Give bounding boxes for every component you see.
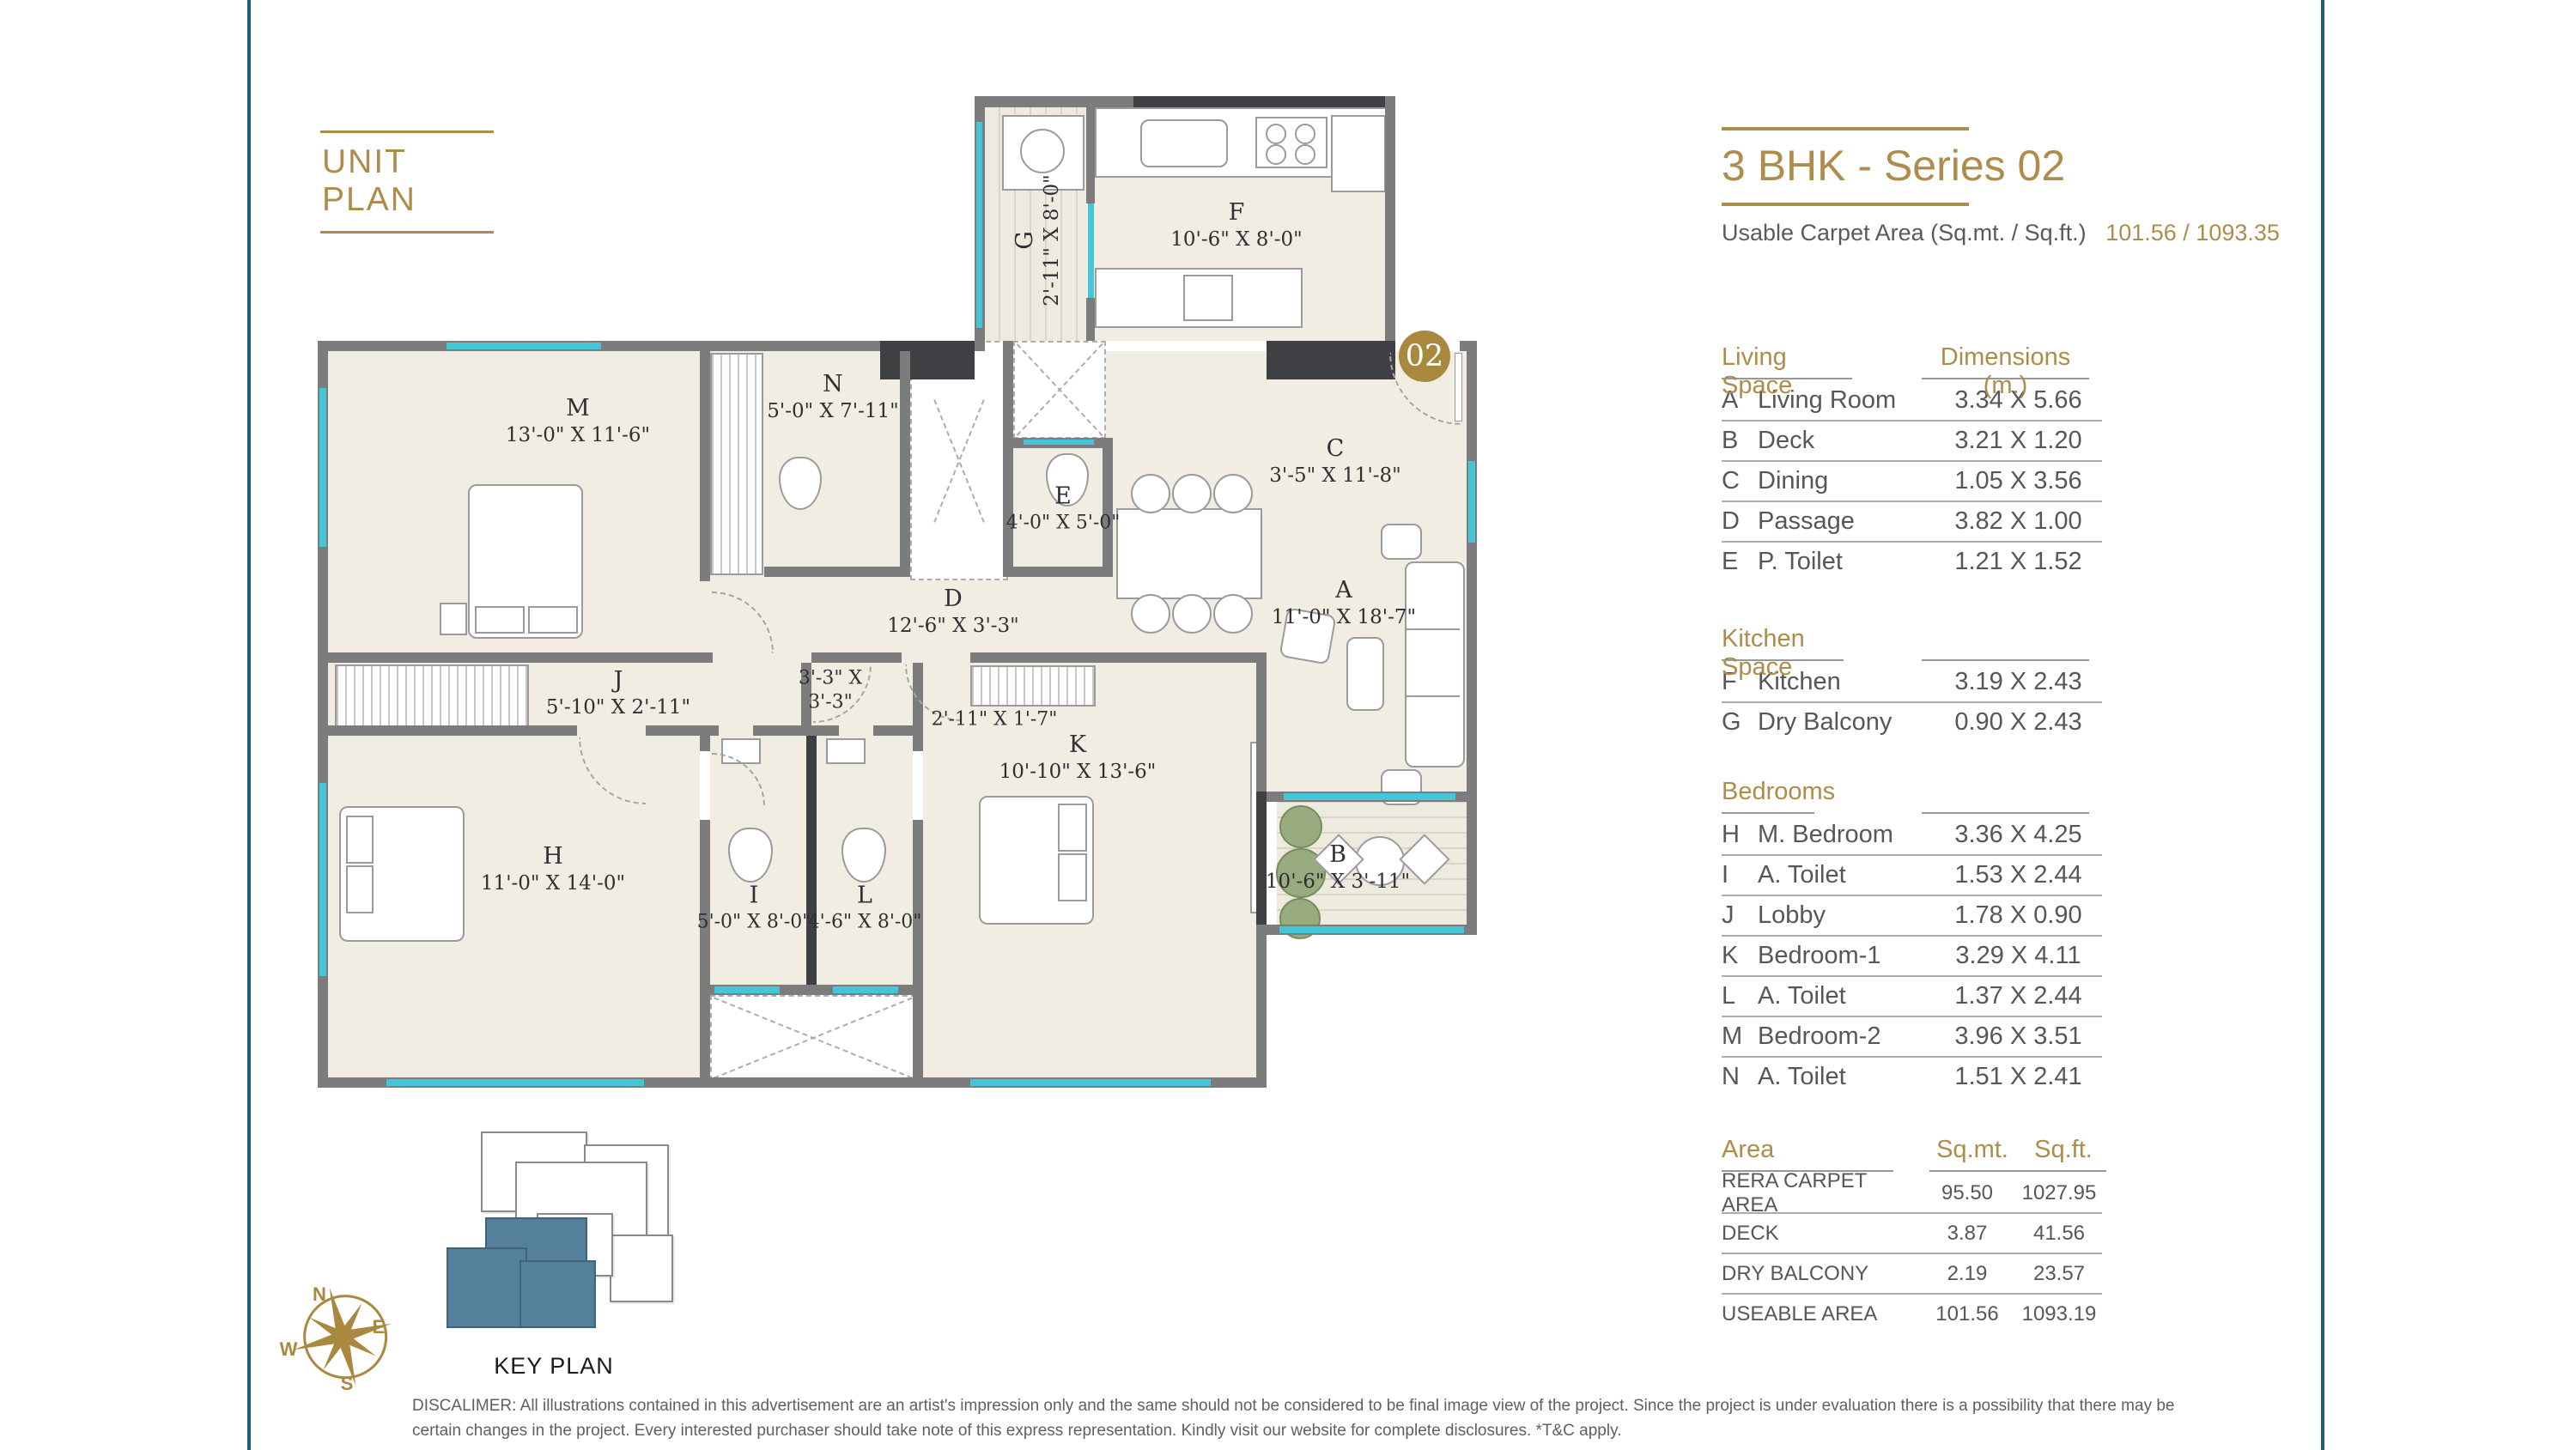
living-space-header: Living Space: [1722, 343, 1852, 379]
room-label-c: C3'-5" X 11'-8": [1269, 434, 1401, 488]
dining-chair: [1213, 474, 1253, 513]
small-dim-label: 3'-3" X 3'-3": [787, 667, 873, 714]
right-frame-line: [2321, 0, 2324, 1450]
small-dim-label: 2'-11" X 1'-7": [932, 707, 1058, 731]
room-label-a: A11'-0" X 18'-7": [1272, 576, 1416, 630]
room-label-d: D12'-6" X 3'-3": [887, 585, 1019, 639]
highlighted-unit: [519, 1260, 596, 1328]
room-label-i: I5'-0" X 8'-0": [697, 881, 811, 933]
carpet-area-value: 101.56 / 1093.35: [2105, 220, 2280, 246]
room-label-b: B10'-6" X 3'-11": [1266, 840, 1410, 895]
dining-chair: [1131, 594, 1170, 634]
table-row: H M. Bedroom 3.36 X 4.25: [1722, 816, 2102, 854]
table-row: L A. Toilet 1.37 X 2.44: [1722, 975, 2102, 1016]
room-label-g: G2'-11" X 8'-0": [1011, 174, 1065, 306]
wardrobe-hatch-j: [335, 664, 529, 728]
key-plan-label: KEY PLAN: [468, 1353, 640, 1380]
kitchen-space-header: Kitchen Space: [1722, 625, 1844, 661]
dining-chair: [1131, 474, 1170, 513]
left-frame-line: [247, 0, 251, 1450]
table-row: E P. Toilet 1.21 X 1.52: [1722, 541, 2102, 581]
bedrooms-header: Bedrooms: [1722, 778, 1814, 814]
table-row: G Dry Balcony 0.90 X 2.43: [1722, 701, 2102, 742]
carpet-area-line: Usable Carpet Area (Sq.mt. / Sq.ft.) 101…: [1722, 220, 2280, 246]
kitchen-space-table: Kitchen Space F Kitchen 3.19 X 2.43 G Dr…: [1722, 625, 2102, 742]
table-row: D Passage 3.82 X 1.00: [1722, 501, 2102, 541]
room-label-k: K10'-10" X 13'-6": [999, 731, 1157, 785]
shaft-duct: [1013, 341, 1106, 439]
series-title: 3 BHK - Series 02: [1722, 127, 1969, 206]
room-label-h: H11'-0" X 14'-0": [481, 842, 625, 896]
dining-table: [1116, 508, 1262, 599]
wardrobe-hatch-k: [970, 665, 1096, 707]
table-row: K Bedroom-1 3.29 X 4.11: [1722, 935, 2102, 975]
dining-chair: [1213, 594, 1253, 634]
wardrobe-hatch-m: [710, 353, 763, 575]
dimensions-header: Dimensions (m.): [1922, 343, 2089, 379]
table-row: USEABLE AREA 101.56 1093.19: [1722, 1293, 2102, 1333]
compass-east-label: E: [373, 1316, 386, 1338]
area-table: Area Sq.mt. Sq.ft. RERA CARPET AREA 95.5…: [1722, 1136, 2102, 1333]
room-label-f: F10'-6" X 8'-0": [1170, 198, 1303, 252]
table-row: DECK 3.87 41.56: [1722, 1212, 2102, 1253]
highlighted-unit: [447, 1247, 527, 1328]
table-row: B Deck 3.21 X 1.20: [1722, 420, 2102, 460]
floor-plan: A11'-0" X 18'-7" B10'-6" X 3'-11" C3'-5"…: [318, 96, 1520, 1096]
coffee-table: [1346, 637, 1384, 711]
kitchen-sink: [1140, 119, 1228, 167]
compass-north-label: N: [313, 1283, 326, 1306]
room-label-j: J5'-10" X 2'-11": [546, 666, 690, 720]
table-row: M Bedroom-2 3.96 X 3.51: [1722, 1016, 2102, 1056]
table-row: N A. Toilet 1.51 X 2.41: [1722, 1056, 2102, 1096]
table-row: C Dining 1.05 X 3.56: [1722, 460, 2102, 501]
brochure-page: UNIT PLAN: [0, 0, 2576, 1450]
table-row: DRY BALCONY 2.19 23.57: [1722, 1253, 2102, 1293]
room-label-n: N5'-0" X 7'-11": [767, 370, 899, 424]
shaft-duct: [710, 995, 916, 1081]
compass-south-label: S: [341, 1373, 354, 1395]
compass-west-label: W: [280, 1338, 298, 1361]
washbasin-l: [826, 738, 866, 764]
disclaimer-text: DISCALIMER: All illustrations contained …: [412, 1394, 2194, 1443]
table-row: J Lobby 1.78 X 0.90: [1722, 895, 2102, 935]
dining-chair: [1172, 594, 1212, 634]
living-space-table: Living Space Dimensions (m.) A Living Ro…: [1722, 343, 2102, 581]
refrigerator: [1331, 115, 1386, 192]
carpet-area-label: Usable Carpet Area (Sq.mt. / Sq.ft.): [1722, 220, 2087, 246]
key-plan: [434, 1131, 683, 1338]
room-label-l: L4'-6" X 8'-0": [808, 881, 922, 933]
stove: [1255, 117, 1327, 168]
dining-chair: [1172, 474, 1212, 513]
room-label-m: M13'-0" X 11'-6": [506, 394, 650, 448]
table-row: I A. Toilet 1.53 X 2.44: [1722, 854, 2102, 895]
unit-number-badge: 02: [1399, 331, 1450, 382]
bedrooms-table: Bedrooms H M. Bedroom 3.36 X 4.25 I A. T…: [1722, 778, 2102, 1096]
room-label-e: E4'-0" X 5'-0": [1006, 482, 1121, 534]
table-row: RERA CARPET AREA 95.50 1027.95: [1722, 1174, 2102, 1212]
